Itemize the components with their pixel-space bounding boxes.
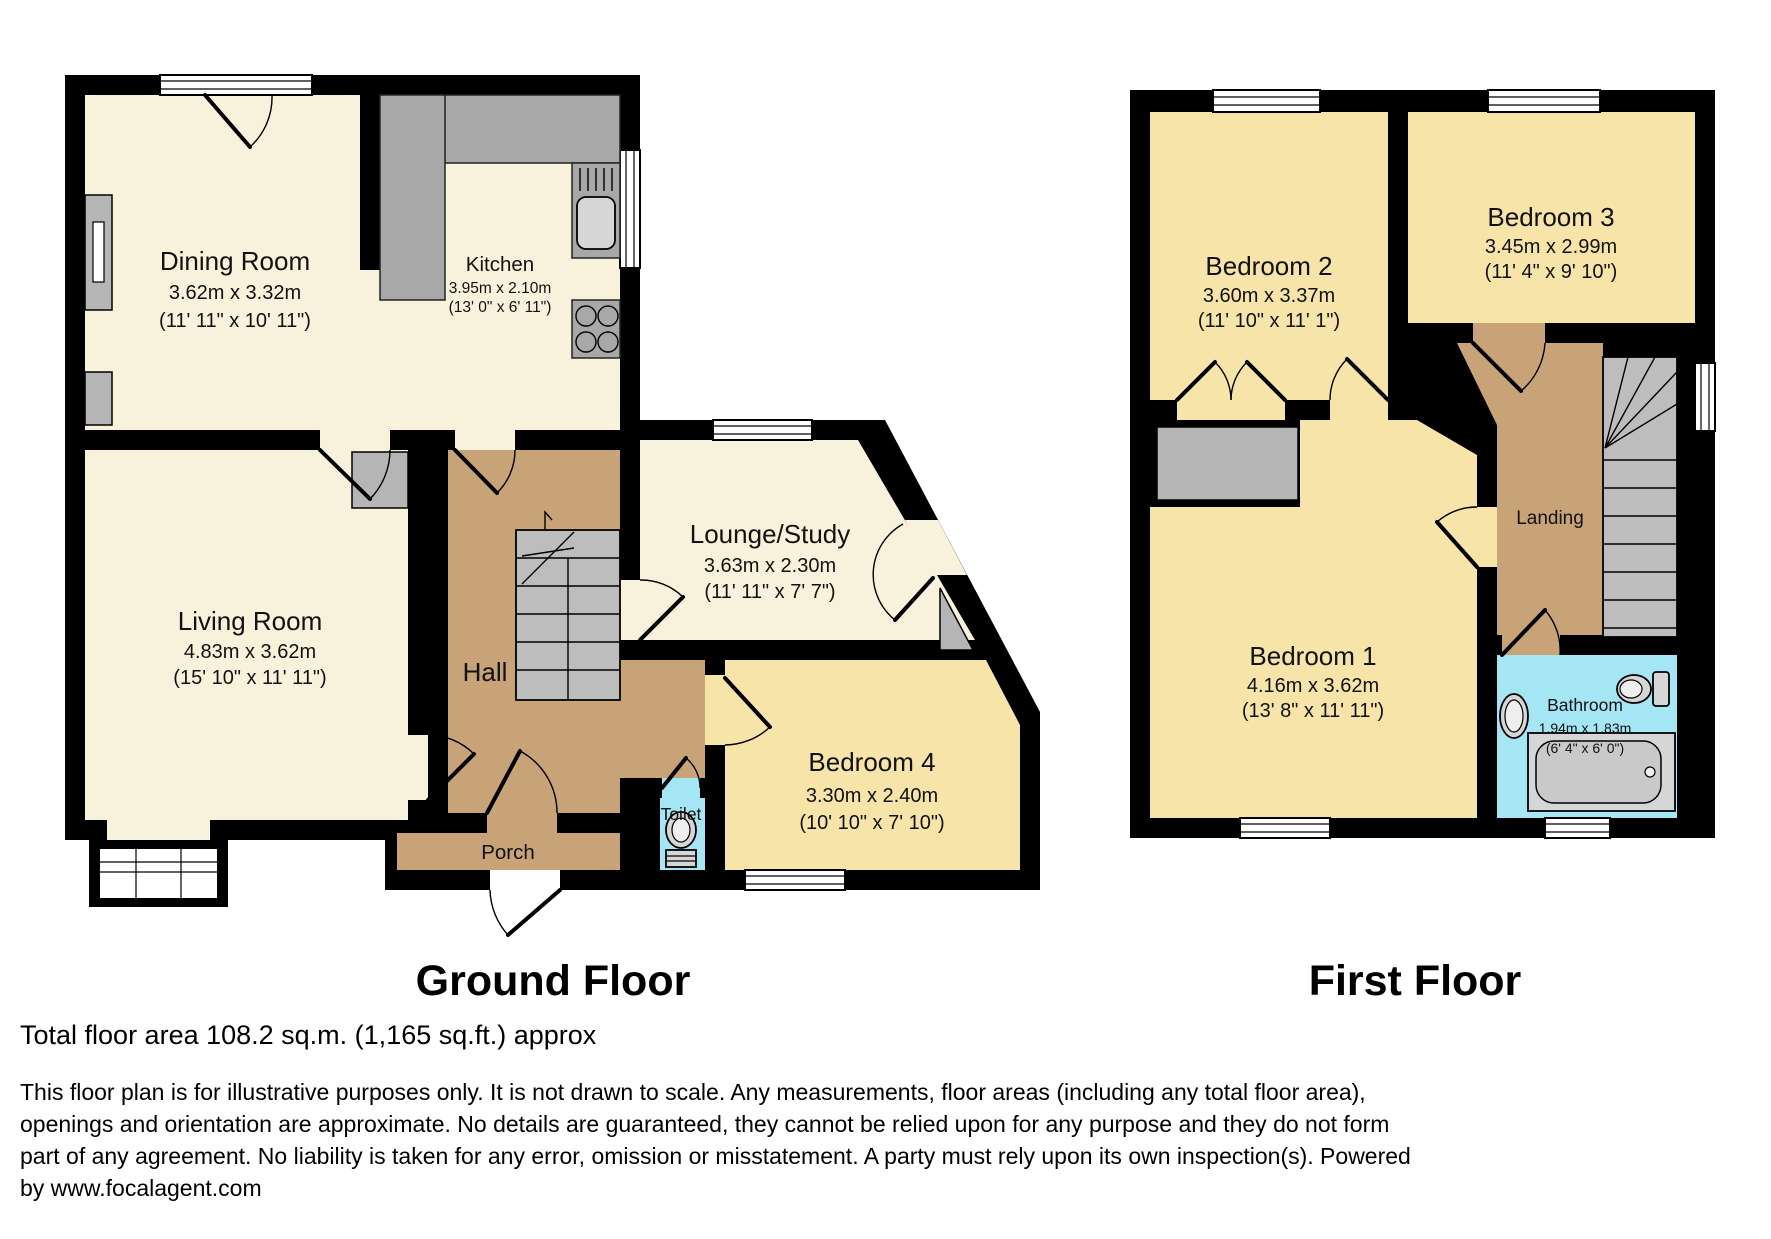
living-room-label: Living Room [178,606,323,636]
kitchen-sink [572,163,620,258]
bathroom-imperial: (6' 4" x 6' 0") [1546,740,1624,756]
kitchen-metric: 3.95m x 2.10m [449,280,552,297]
landing-label: Landing [1516,508,1584,529]
disclaimer-line: openings and orientation are approximate… [20,1108,1411,1140]
lounge-window [713,420,812,440]
total-floor-area: Total floor area 108.2 sq.m. (1,165 sq.f… [20,1020,596,1051]
lounge-imperial: (11' 11" x 7' 7") [704,581,835,603]
bedroom2-door-opening [1330,400,1388,420]
bedroom2-window [1213,90,1320,112]
first-floor-plan: Bedroom 2 3.60m x 3.37m (11' 10" x 11' 1… [1130,90,1715,838]
ground-floor-stairs [516,512,620,700]
bedroom2-imperial: (11' 10" x 11' 1") [1198,310,1340,332]
dining-window [160,75,312,95]
bathroom-metric: 1.94m x 1.83m [1539,720,1632,736]
porch-hall-door-opening [487,813,557,833]
bedroom2-metric: 3.60m x 3.37m [1203,285,1335,307]
bedroom1-window [1240,818,1330,838]
living-room-imperial: (15' 10" x 11' 11") [173,667,326,689]
lounge-label: Lounge/Study [690,519,850,549]
fireplace [85,195,112,310]
toilet-icon-ff [1617,672,1669,706]
living-door-opening [320,430,390,450]
living-hall-door-opening [408,735,428,800]
porch-label: Porch [481,841,535,864]
bathroom-label: Bathroom [1547,695,1623,715]
floorplan-svg: Dining Room 3.62m x 3.32m (11' 11" x 10'… [0,0,1771,1239]
kitchen-hob [572,300,620,358]
ground-floor-plan: Dining Room 3.62m x 3.32m (11' 11" x 10'… [65,75,1040,935]
chimney-block [85,372,112,425]
bathroom-window [1545,818,1610,838]
living-room-metric: 4.83m x 3.62m [184,641,316,663]
kitchen-label: Kitchen [466,253,534,276]
bedroom1-metric: 4.16m x 3.62m [1247,675,1379,697]
bedroom3-window [1488,90,1600,112]
bedroom3-door-opening [1473,323,1545,343]
ground-floor-title: Ground Floor [416,957,691,1005]
floorplan-page: { "document": {"type": "floorplan"}, "gr… [0,0,1771,1239]
wardrobe-doors-opening [1177,400,1285,420]
bedroom4-door-opening [705,675,725,745]
bedroom4-imperial: (10' 10" x 7' 10") [799,812,944,834]
first-floor-title: First Floor [1309,957,1522,1005]
kitchen-hall-door-opening [455,430,515,450]
bedroom1-wardrobe [1157,427,1298,500]
dining-room-imperial: (11' 11" x 10' 11") [159,310,311,332]
bedroom4-window [745,870,845,890]
hall-label: Hall [463,657,508,687]
disclaimer: This floor plan is for illustrative purp… [20,1076,1411,1204]
bedroom1-door-opening [1477,507,1497,567]
sink-icon [1500,694,1528,738]
dining-kitchen-divider-wall [360,95,380,270]
dining-room-label: Dining Room [160,246,310,276]
disclaimer-line: This floor plan is for illustrative purp… [20,1076,1411,1108]
porch-exterior-door-opening [490,870,560,890]
bedroom3-imperial: (11' 4" x 9' 10") [1485,261,1618,283]
bedroom1-imperial: (13' 8" x 11' 11") [1242,700,1384,722]
kitchen-window [620,150,640,268]
bedroom4-label: Bedroom 4 [808,747,935,777]
porch-exterior-door [490,890,560,935]
kitchen-imperial: (13' 0" x 6' 11") [449,299,552,316]
bay-window [99,820,218,899]
bedroom3-metric: 3.45m x 2.99m [1485,236,1617,258]
disclaimer-line: part of any agreement. No liability is t… [20,1140,1411,1172]
lounge-door-opening [620,580,640,640]
bedroom1-label: Bedroom 1 [1249,641,1376,671]
first-floor-stairs [1603,357,1677,637]
disclaimer-line: by www.focalagent.com [20,1172,1411,1204]
toilet-label: Toilet [661,804,702,824]
bedroom3-label: Bedroom 3 [1487,202,1614,232]
hall-cupboard [352,452,408,508]
dining-room-metric: 3.62m x 3.32m [169,282,301,304]
bedroom2-label: Bedroom 2 [1205,251,1332,281]
stairs-window [1695,363,1715,431]
bedroom4-metric: 3.30m x 2.40m [806,785,938,807]
lounge-metric: 3.63m x 2.30m [704,555,836,577]
